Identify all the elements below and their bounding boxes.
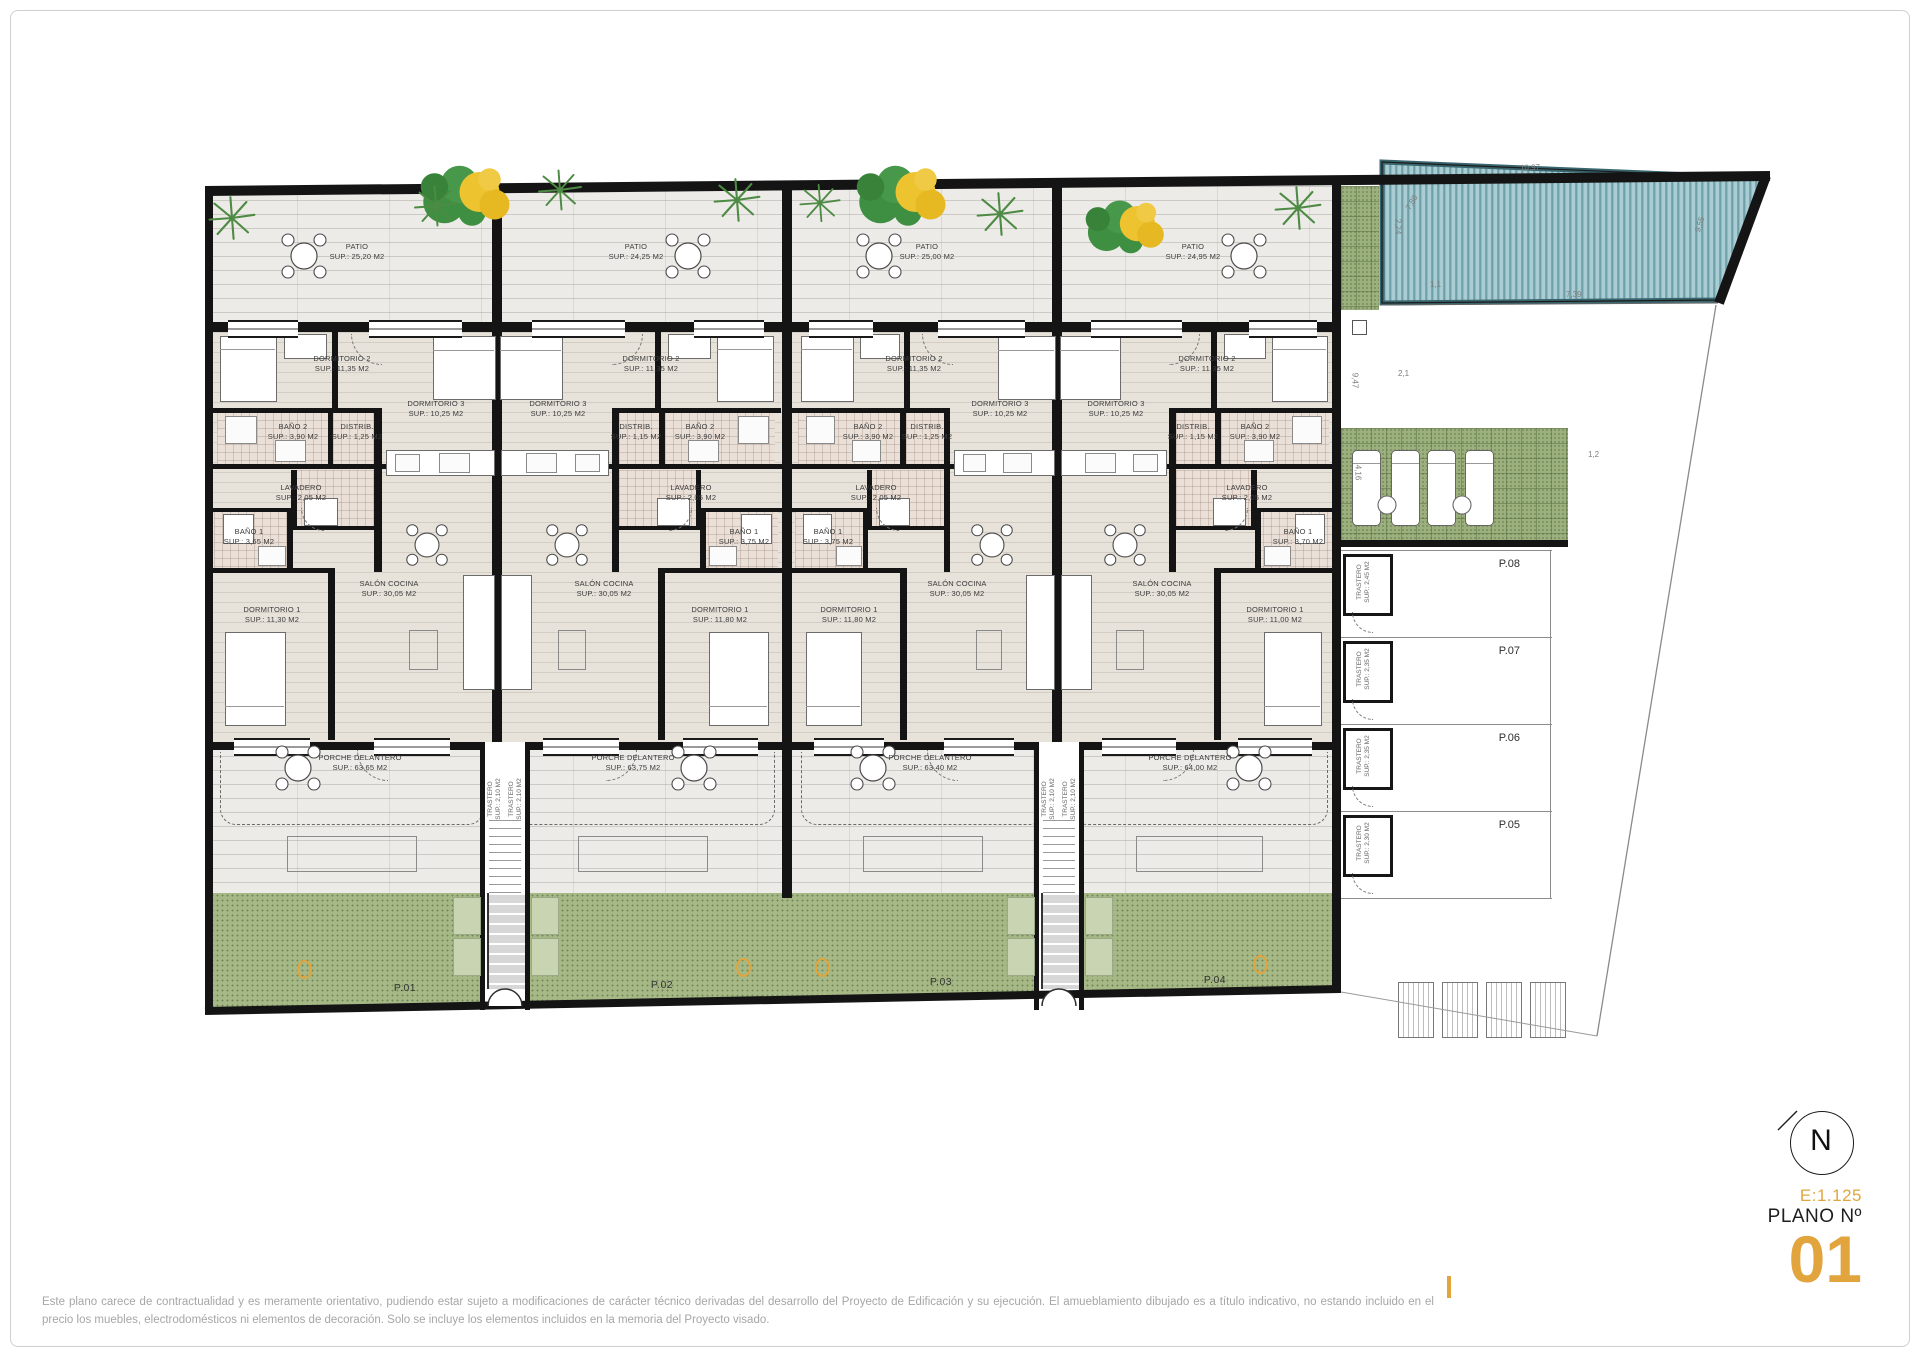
floor-plan-sheet: PATIOSUP.: 25,20 M2 DORMITORIO 2SUP.: 11…	[0, 0, 1920, 1357]
page-frame	[10, 10, 1910, 1347]
